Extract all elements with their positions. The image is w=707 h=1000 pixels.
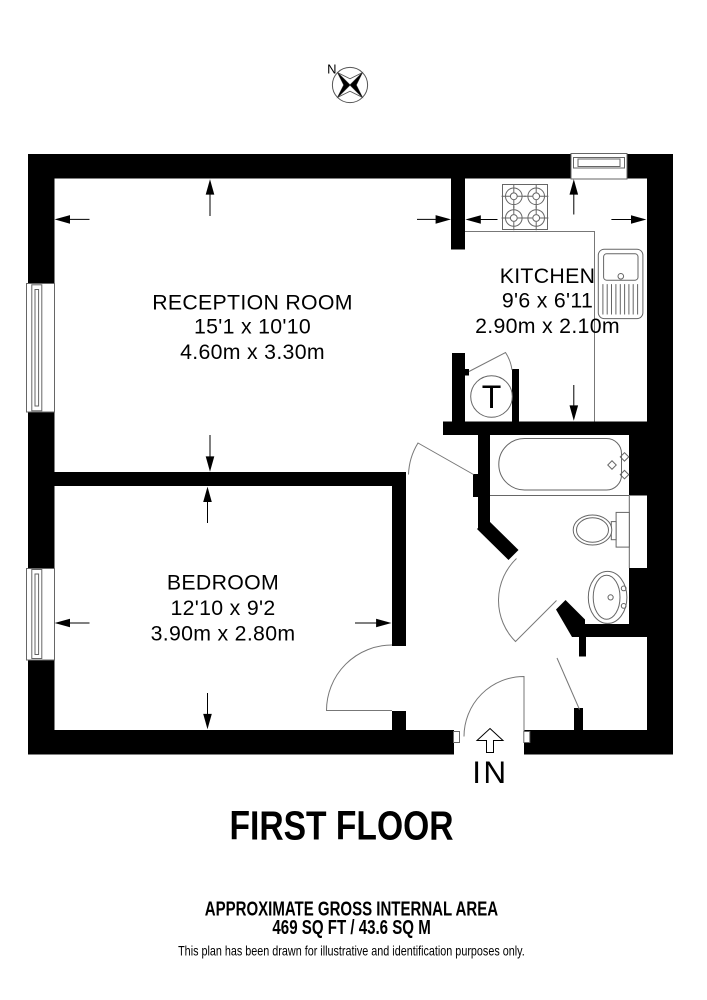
svg-text:N: N <box>327 61 336 76</box>
svg-text:15'1 x 10'10: 15'1 x 10'10 <box>194 315 311 339</box>
svg-text:T: T <box>482 379 502 415</box>
svg-text:9'6 x 6'11: 9'6 x 6'11 <box>502 289 593 313</box>
svg-text:FIRST FLOOR: FIRST FLOOR <box>229 802 453 848</box>
svg-text:IN: IN <box>472 754 508 790</box>
svg-text:BEDROOM: BEDROOM <box>167 571 279 595</box>
svg-text:469 SQ FT / 43.6 SQ M: 469 SQ FT / 43.6 SQ M <box>272 916 430 939</box>
svg-text:4.60m x 3.30m: 4.60m x 3.30m <box>180 340 325 364</box>
svg-text:RECEPTION ROOM: RECEPTION ROOM <box>152 290 353 314</box>
svg-text:3.90m x 2.80m: 3.90m x 2.80m <box>151 621 296 645</box>
svg-text:2.90m x 2.10m: 2.90m x 2.10m <box>475 314 620 338</box>
svg-text:12'10 x 9'2: 12'10 x 9'2 <box>171 596 276 620</box>
svg-text:This plan has been drawn for i: This plan has been drawn for illustrativ… <box>178 943 525 958</box>
svg-text:KITCHEN: KITCHEN <box>500 264 596 288</box>
